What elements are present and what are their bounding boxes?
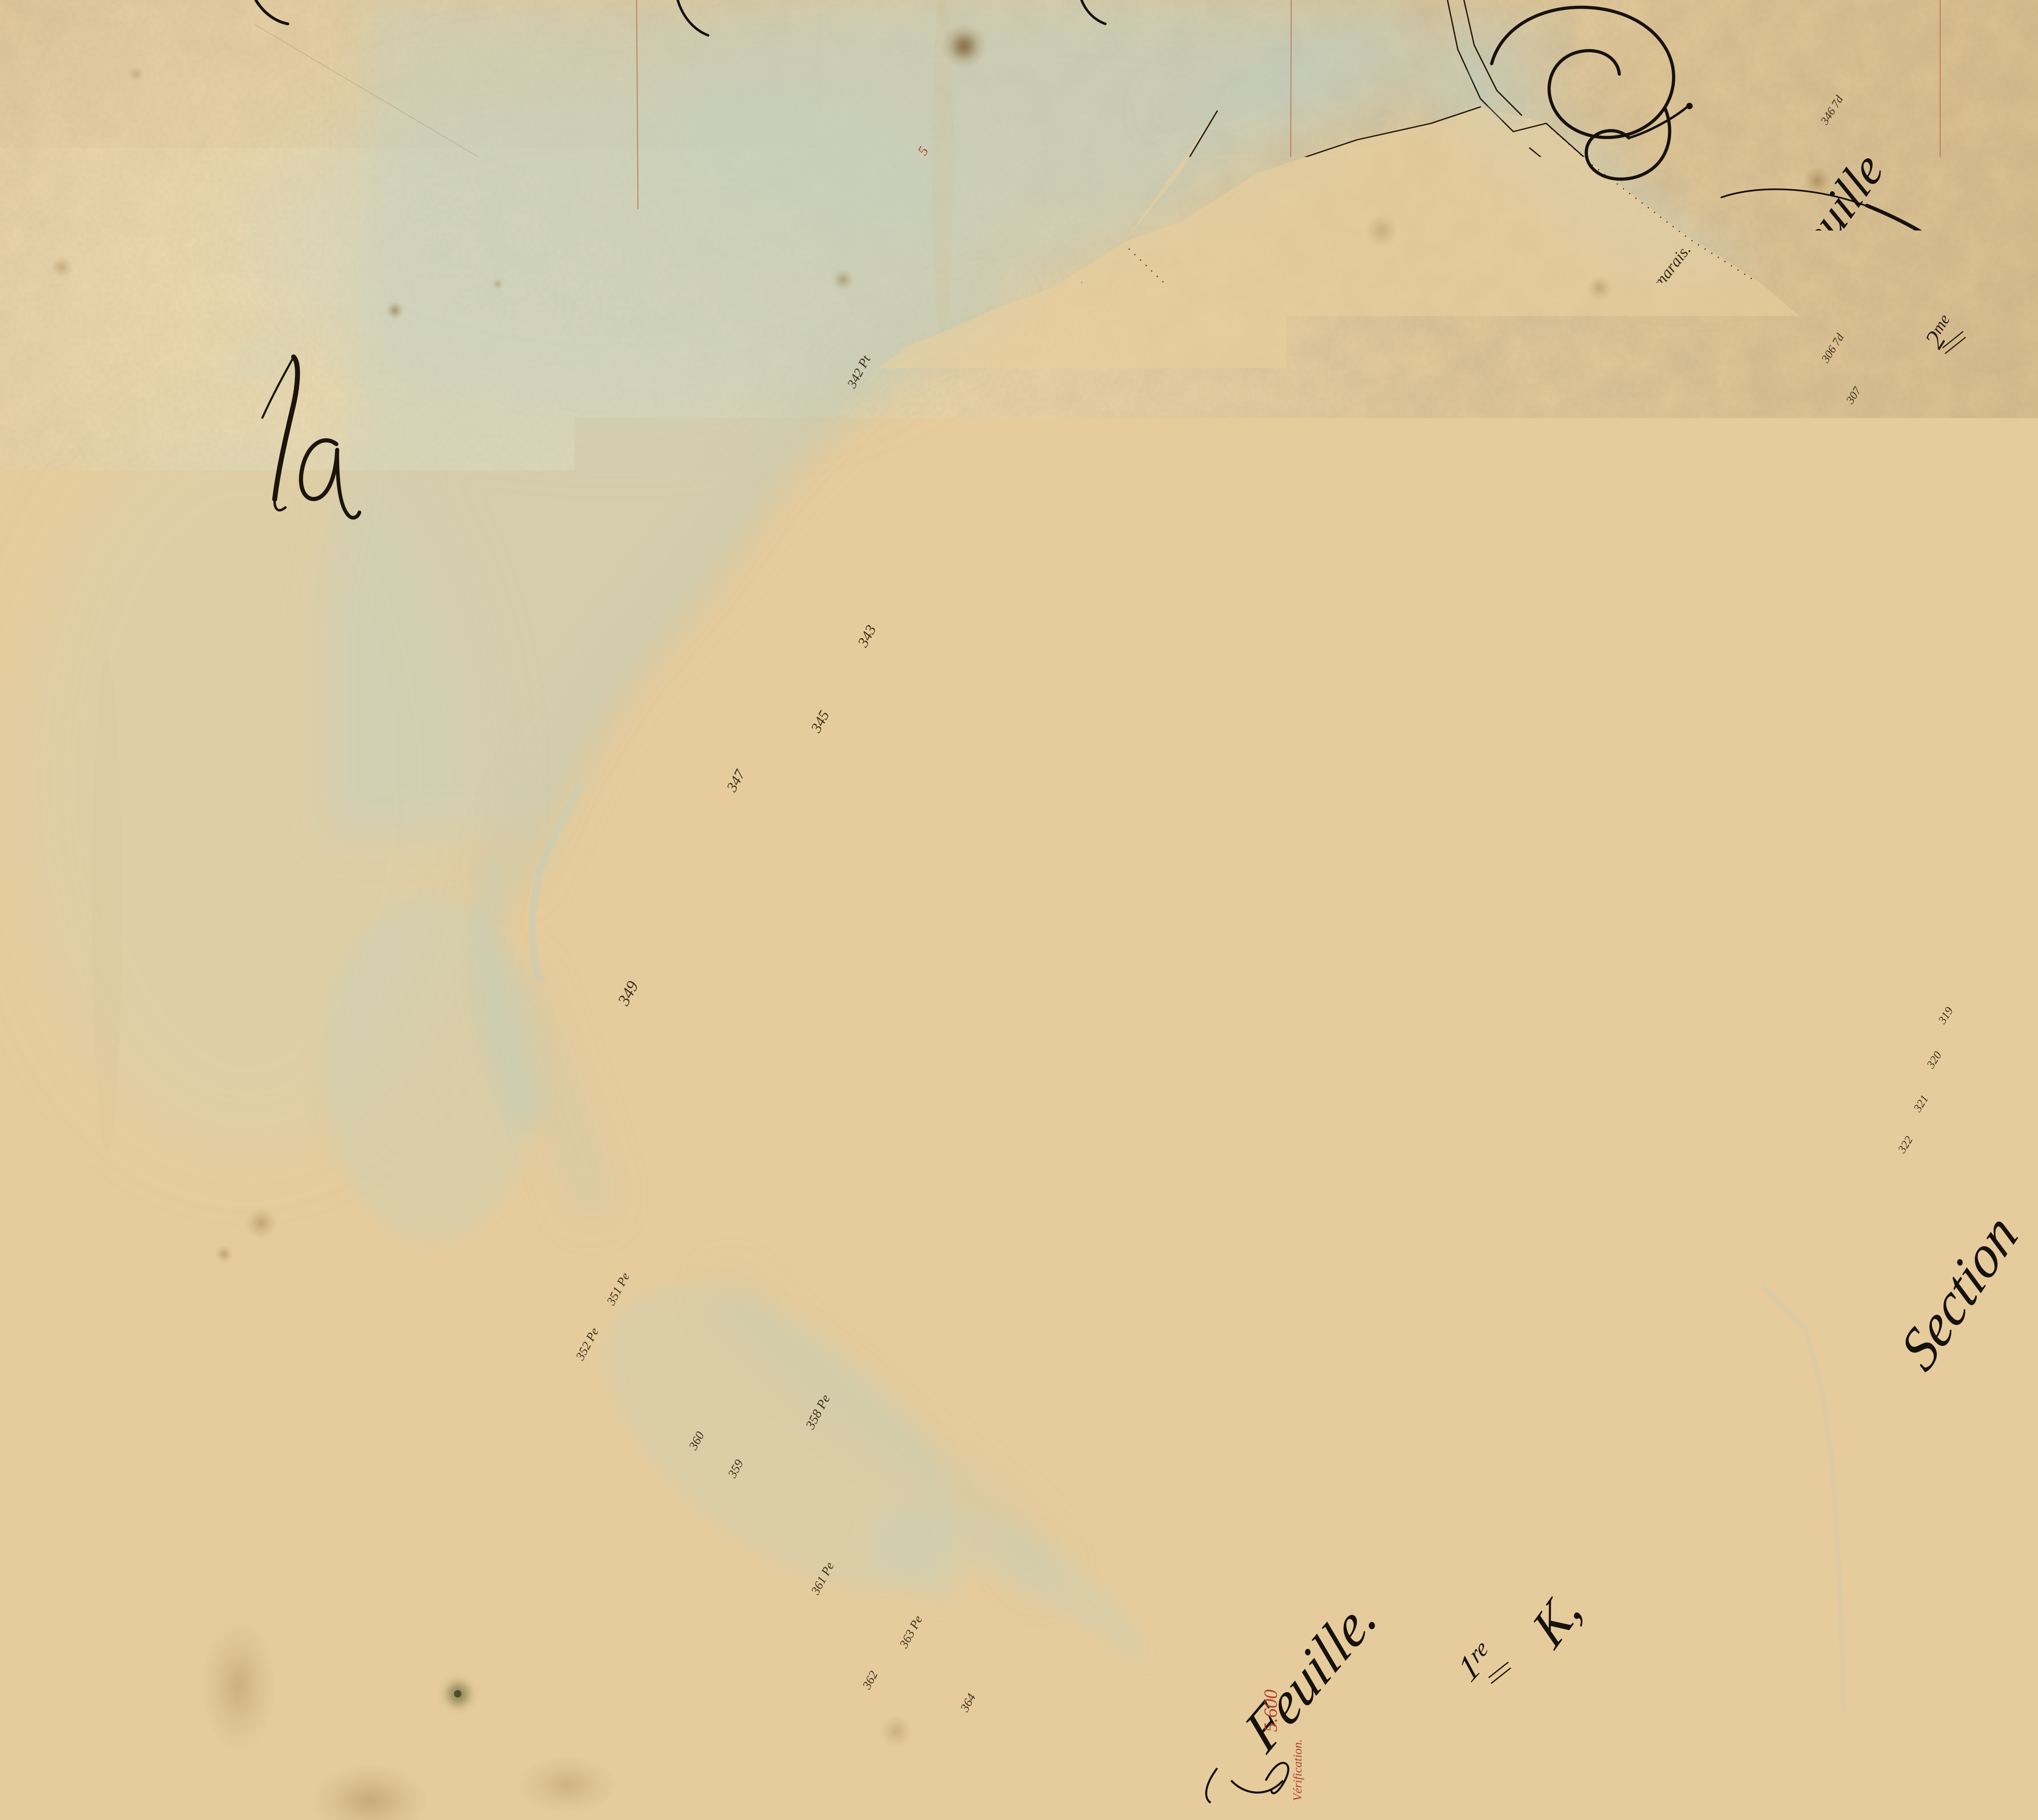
svg-text:Vérification.: Vérification.: [1291, 1739, 1304, 1801]
svg-text:5.600: 5.600: [1260, 1690, 1281, 1732]
svg-text:5.400.: 5.400.: [616, 1695, 637, 1743]
svg-text:7.40: 7.40: [2011, 1097, 2038, 1121]
svg-text:7.2o: 7.2o: [2008, 1727, 2038, 1753]
